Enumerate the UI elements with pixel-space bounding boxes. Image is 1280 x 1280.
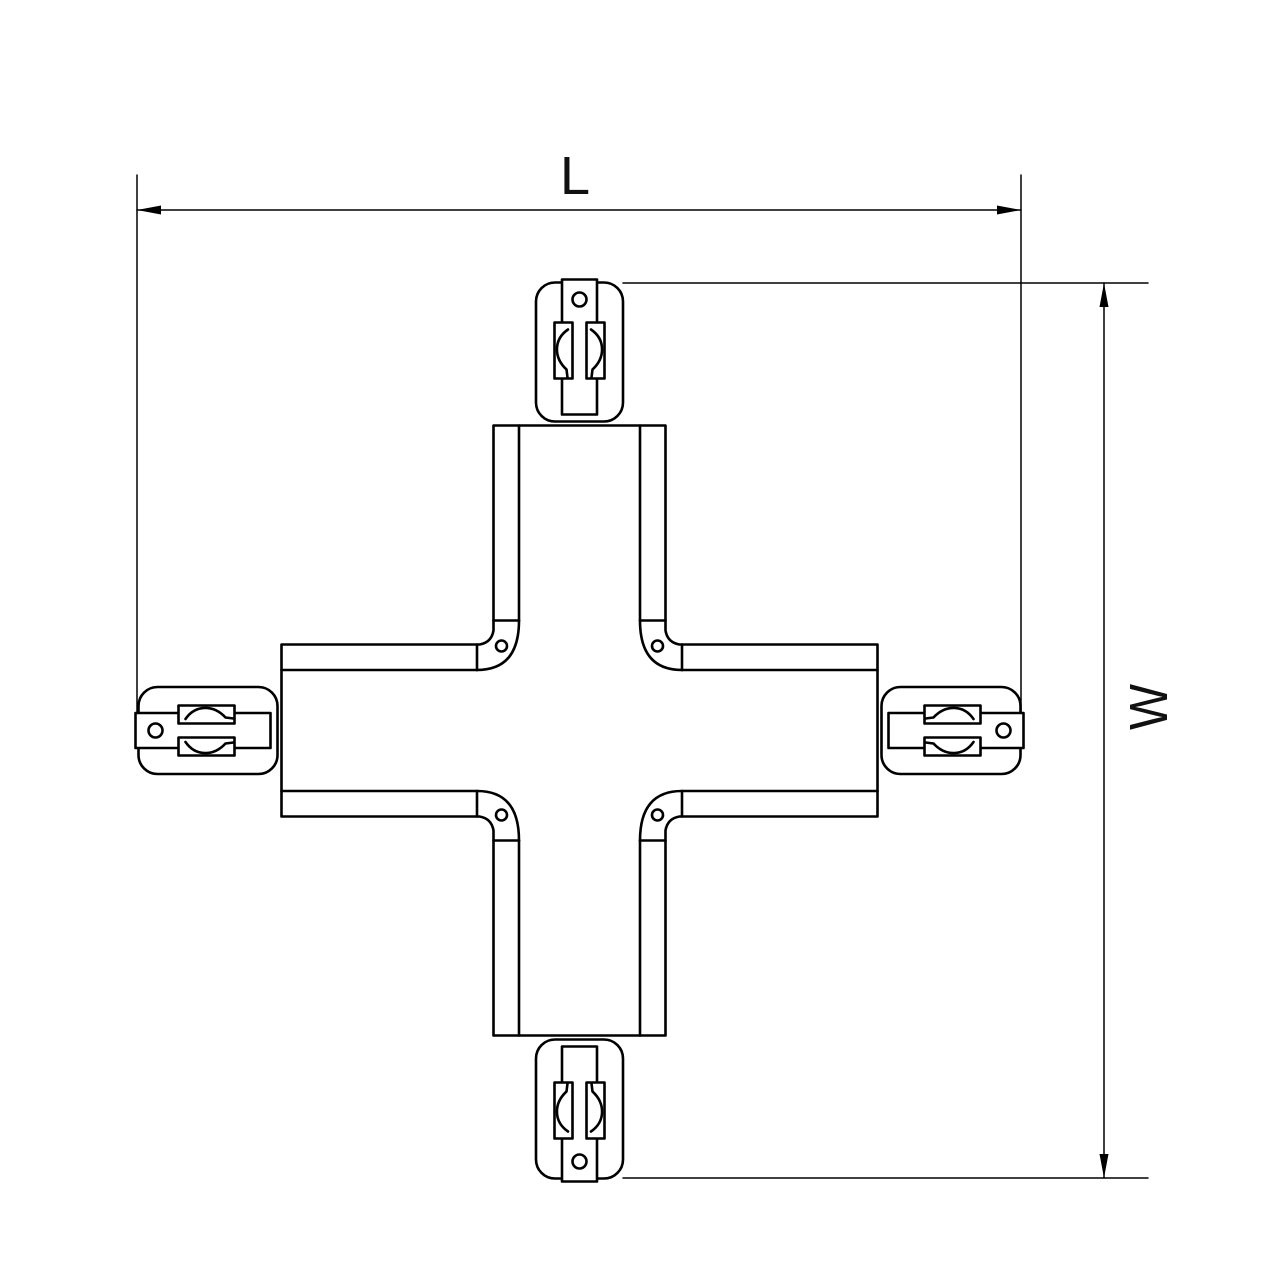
arrowhead-up-icon — [1100, 283, 1109, 307]
end-cap-connector-bottom — [536, 1040, 623, 1182]
cross-outer-outline — [282, 426, 878, 1036]
screw-icon — [652, 641, 663, 652]
technical-drawing-svg: L W — [0, 0, 1280, 1280]
arrowhead-right-icon — [997, 206, 1021, 215]
track-connector-diagram: L W — [0, 0, 1280, 1280]
dimension-label-W: W — [1119, 684, 1179, 730]
end-cap-connector-top — [536, 280, 623, 422]
cap-hole — [149, 724, 163, 738]
arrowhead-down-icon — [1100, 1154, 1109, 1178]
arrowhead-left-icon — [137, 206, 161, 215]
cross-body — [136, 280, 1024, 1182]
dimension-label-L: L — [560, 146, 590, 206]
end-cap-connector-right — [882, 687, 1024, 774]
end-cap-connector — [136, 687, 278, 774]
